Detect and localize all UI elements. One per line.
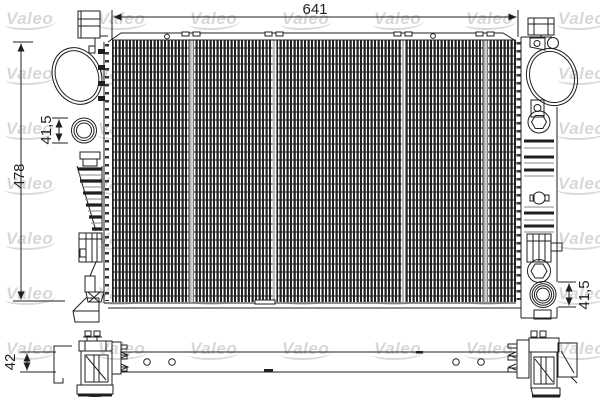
right-hex-port-lower xyxy=(528,260,551,283)
dim-core-thickness-label: 42 xyxy=(3,346,19,378)
left-tank-ribs xyxy=(77,152,102,231)
right-tank-ribs xyxy=(524,141,554,232)
dim-right-port xyxy=(558,282,576,307)
right-top-bracket xyxy=(528,18,554,38)
bottom-profile-view xyxy=(20,331,577,397)
left-connector-block xyxy=(79,233,102,262)
right-outlet-port-rings xyxy=(530,282,556,308)
right-hex-port-upper xyxy=(528,111,550,133)
left-inlet-ellipse xyxy=(43,40,110,113)
dim-left-port-label: 41,5 xyxy=(39,109,55,151)
right-inlet-ellipse xyxy=(519,41,586,113)
right-tank xyxy=(519,18,586,319)
radiator-core xyxy=(104,32,521,308)
filler-cap-tab xyxy=(530,38,559,51)
dim-right-port-label: 41,5 xyxy=(577,274,593,316)
profile-right-connector xyxy=(508,331,577,396)
left-port-rings xyxy=(72,118,97,143)
profile-core-bar xyxy=(121,351,516,372)
profile-left-angle-bracket xyxy=(54,346,72,383)
left-tank xyxy=(43,11,110,322)
dim-overall-height-label: 478 xyxy=(12,154,28,198)
left-drain-plug xyxy=(73,262,104,322)
dim-core-thickness xyxy=(20,352,56,372)
radiator-technical-drawing: ValeoValeoValeoValeoValeoValeoValeoValeo… xyxy=(0,0,600,400)
radiator-line-art xyxy=(0,0,600,400)
profile-left-connector xyxy=(77,331,127,397)
dim-overall-width-label: 641 xyxy=(293,2,337,17)
